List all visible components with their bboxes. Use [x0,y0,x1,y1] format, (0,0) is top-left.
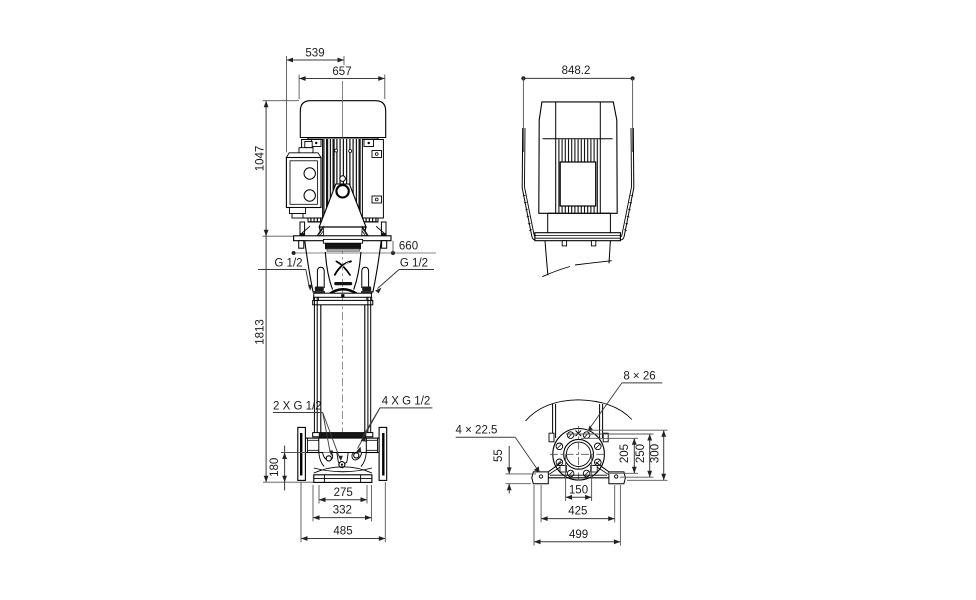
svg-text:425: 425 [568,506,587,518]
svg-text:499: 499 [569,529,588,541]
svg-text:332: 332 [333,505,352,517]
svg-text:55: 55 [493,449,505,462]
svg-text:1813: 1813 [255,319,267,345]
svg-text:300: 300 [650,444,662,463]
svg-text:180: 180 [269,458,281,477]
svg-text:150: 150 [569,485,588,497]
svg-text:4 X G 1/2: 4 X G 1/2 [382,396,431,408]
svg-text:8 × 26: 8 × 26 [623,371,655,383]
svg-text:G 1/2: G 1/2 [274,258,302,270]
svg-text:250: 250 [635,444,647,463]
svg-text:657: 657 [332,66,351,78]
svg-text:G 1/2: G 1/2 [400,258,428,270]
svg-text:275: 275 [334,487,353,499]
svg-text:205: 205 [619,444,631,463]
svg-text:660: 660 [399,241,418,253]
svg-text:485: 485 [333,526,352,538]
svg-text:539: 539 [305,48,324,60]
svg-text:1047: 1047 [255,146,267,172]
svg-text:4 × 22.5: 4 × 22.5 [456,425,498,437]
svg-text:848.2: 848.2 [562,65,591,77]
svg-text:2 X G 1/2: 2 X G 1/2 [273,400,322,412]
